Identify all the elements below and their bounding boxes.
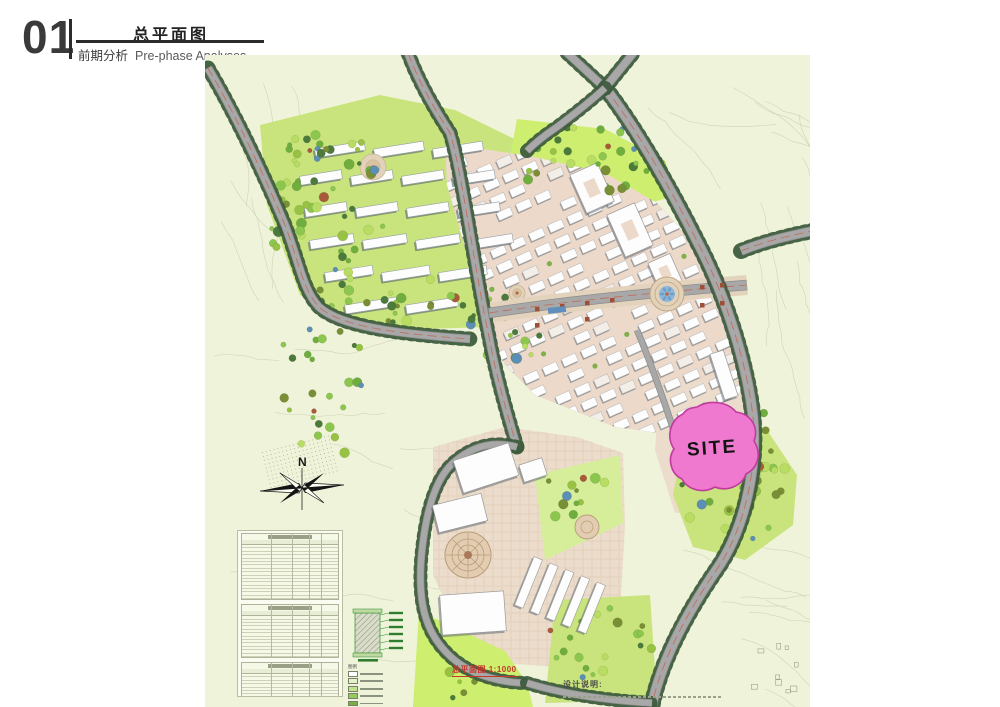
legend-title: 图例 [348,664,410,670]
legend-rows [348,671,410,706]
map-legend: 图例 [348,664,410,700]
legend-label-placeholder [360,680,383,682]
legend-swatch [348,678,358,684]
indicator-tables-panel [237,530,343,697]
legend-label-placeholder [360,695,383,697]
legend-item [348,686,410,692]
header-divider-bar [69,19,72,59]
legend-swatch [348,701,358,707]
compass: N [256,452,348,516]
title-underline [76,40,264,43]
legend-label-placeholder [360,673,383,675]
presentation-page: 01 总平面图 前期分析Pre-phase Analyses SITE N [0,0,1000,707]
section-body [355,613,380,653]
legend-swatch [348,686,358,692]
legend-item [348,693,410,699]
legend-item [348,671,410,677]
legend-item [348,678,410,684]
site-label: SITE [686,436,738,460]
section-callouts [380,613,389,650]
compass-n-label: N [298,455,307,469]
design-notes-fine-print [563,696,721,698]
section-cap-top [353,609,382,613]
site-marker: SITE [670,402,758,490]
design-notes-title: 设计说明: [563,679,733,690]
road-section-detail [352,606,406,664]
scale-label: 总平面图 1:1000 [452,664,517,677]
legend-item [348,701,410,707]
indicator-table-section [241,604,339,658]
subtitle-cn: 前期分析 [78,49,128,63]
legend-label-placeholder [360,703,383,705]
section-number: 01 [22,10,75,64]
design-notes: 设计说明: [563,679,733,698]
legend-swatch [348,693,358,699]
indicator-table-section [241,533,339,600]
legend-label-placeholder [360,688,383,690]
indicator-table-section [241,662,339,697]
section-cap-bottom [353,653,382,657]
legend-swatch [348,671,358,677]
